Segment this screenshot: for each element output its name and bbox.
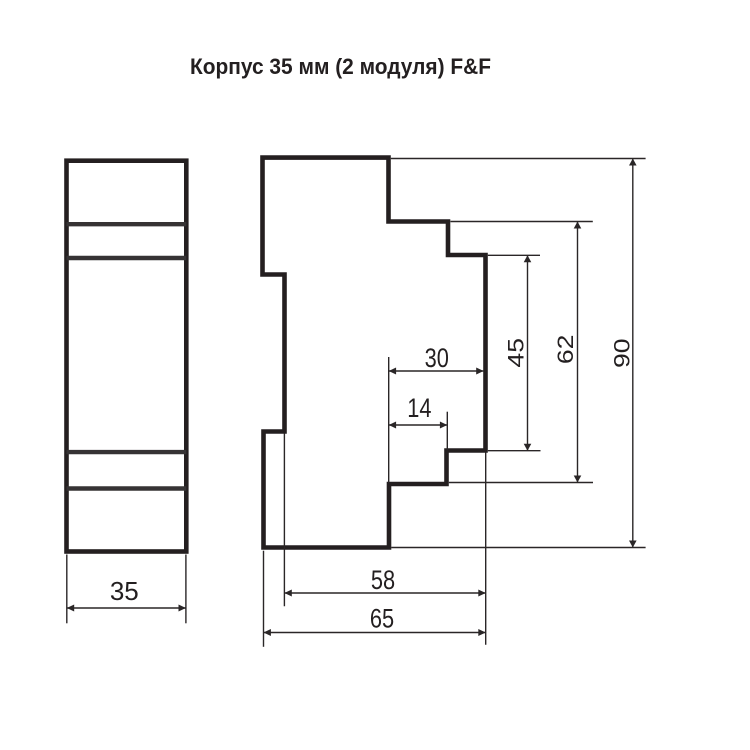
- svg-text:35: 35: [110, 576, 139, 606]
- svg-text:90: 90: [610, 338, 634, 368]
- svg-text:30: 30: [425, 344, 449, 374]
- svg-text:65: 65: [370, 605, 394, 635]
- svg-text:58: 58: [371, 566, 395, 596]
- svg-text:14: 14: [407, 394, 431, 424]
- svg-text:Корпус 35 мм (2 модуля) F&F: Корпус 35 мм (2 модуля) F&F: [190, 53, 491, 79]
- svg-text:62: 62: [554, 335, 578, 365]
- svg-text:45: 45: [504, 338, 528, 368]
